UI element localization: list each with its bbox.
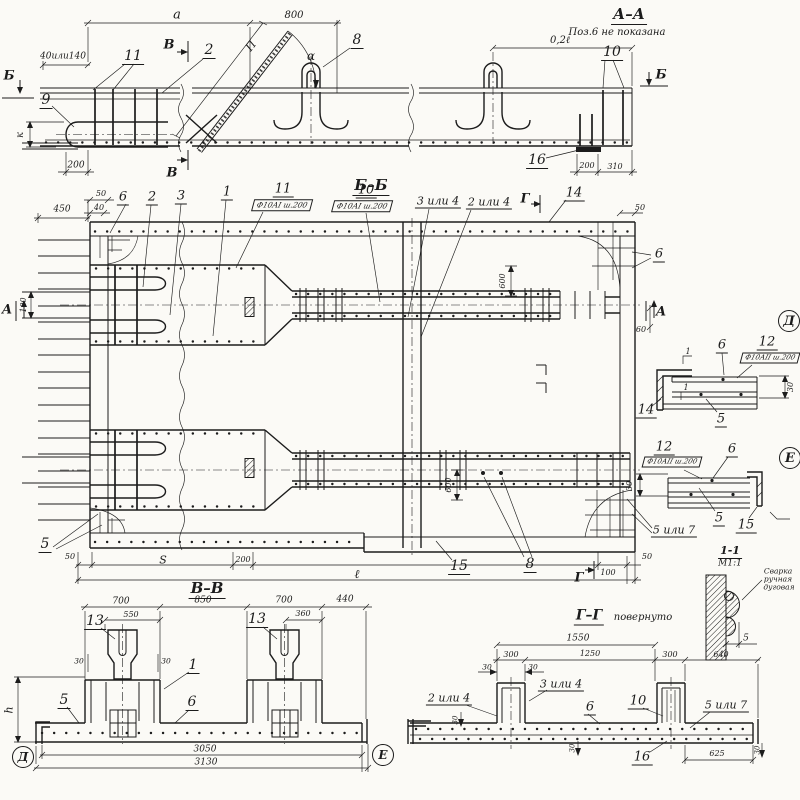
dim-0-2l: 0,2ℓ [550,36,570,46]
dim-30-g5: 30 [755,746,762,755]
detail-e-ref: Е [372,744,394,766]
pos-2-aa: 2 [203,43,216,59]
dim-700-l: 700 [112,598,129,607]
pos-16-aa: 16 [526,153,548,169]
dim-300-r: 300 [662,651,677,659]
pos-16-gg: 16 [632,751,653,766]
section-gg-note: повернуто [614,613,673,623]
dim-600-top: 600 [499,273,507,288]
dim-30-v1: 30 [74,657,84,665]
pos-14-d: 14 [636,404,657,419]
dim-200-bot: 200 [235,556,250,564]
dim-100-bot: 100 [600,569,615,577]
dim-450: 450 [53,206,70,215]
pos-5or7-gg: 5 или 7 [703,700,749,713]
pos-5-vv: 5 [58,693,71,709]
pos-12-d: 12 [757,336,778,351]
dim-30-v2: 30 [161,657,171,665]
marker-a-left: А [2,304,13,317]
marker-v-bottom: В [167,167,178,180]
pos-3or4-bb: 3 или 4 [415,196,461,209]
pos-5or7-plan: 5 или 7 [651,525,697,538]
dim-30-g2: 30 [528,663,538,671]
pos-8-bb: 8 [524,557,537,573]
pos-2or4-gg: 2 или 4 [426,693,472,706]
dim-30-g1: 30 [482,663,492,671]
section-aa-note: Поз.6 не показана [569,28,666,38]
dim-40-tl: 40 [94,204,104,212]
flag-11: Ф10АI ш.200 [251,199,313,211]
dim-200-aa: 200 [67,162,84,171]
dim-60: 60 [636,326,646,334]
dim-200-right: 200 [579,162,594,170]
marker-b-right: Б [655,69,666,82]
dim-550: 550 [123,611,138,619]
pos-14-bb: 14 [564,187,585,202]
dim-100-left: 100 [20,297,28,312]
pos-6-tl: 6 [117,191,129,206]
dim-50-tl: 50 [96,190,106,198]
dim-5-weld: 5 [743,635,749,644]
dim-30-g3: 30 [453,716,460,725]
dim-850: 850 [194,597,211,606]
dim-alpha: α [307,50,315,62]
dim-700-r: 700 [275,597,292,606]
detail-d-mark: Д [778,310,800,332]
detail-e-mark: Е [779,447,800,469]
pos-6-e: 6 [726,443,738,458]
dim-50-tr: 50 [635,204,645,212]
weld-mark-1a: 1 [685,348,690,356]
dim-30-g4: 30 [570,744,577,753]
pos-10-aa: 10 [601,45,623,61]
pos-11-bb: 11 [273,183,294,198]
pos-5-e: 5 [713,512,725,527]
flag-12-e: Ф10АII ш.200 [642,457,703,468]
dim-360: 360 [295,610,310,618]
flag-12-d: Ф10АII ш.200 [740,353,800,364]
dim-800: 800 [284,11,303,21]
pos-6-gg: 6 [584,701,596,716]
dim-625: 625 [709,750,724,758]
pos-6-vv: 6 [186,695,199,711]
dim-30-d: 30 [787,382,795,392]
pos-13-r: 13 [246,612,268,628]
pos-1-bb: 1 [221,186,233,201]
pos-3-bb: 3 [175,190,187,205]
dim-440: 440 [336,596,353,605]
dim-k: к [16,132,26,138]
pos-3or4-gg: 3 или 4 [538,679,584,692]
weld-title: 1-1 [718,545,742,559]
dim-h: h [4,706,15,713]
pos-8: 8 [351,33,364,49]
marker-g-bot: Г [575,572,584,585]
dim-50-br: 50 [642,553,652,561]
dim-600-bot: 600 [445,477,453,492]
marker-v-top: В [164,39,175,52]
pos-15-e: 15 [736,519,757,534]
pos-12-e: 12 [654,441,675,456]
drawing-sheet: А–АПоз.6 не показанаа8000,2ℓ40или140Б911… [0,0,800,800]
weld-scale: М1:1 [718,560,742,569]
weld-note-3: дуговая [763,583,794,591]
detail-d-ref: Д [12,746,34,768]
dim-3130: 3130 [195,759,218,768]
marker-g-top: Г [521,193,530,206]
section-gg-title: Г–Г [574,609,604,626]
dim-3050: 3050 [194,746,217,755]
dim-40-140: 40или140 [40,53,86,62]
dim-640: 640 [713,651,728,659]
section-aa-title: А–А [611,7,647,25]
dim-s: S [159,555,167,566]
pos-5-d: 5 [715,413,727,428]
pos-2or4-bb: 2 или 4 [466,197,512,210]
annotation-layer: А–АПоз.6 не показанаа8000,2ℓ40или140Б911… [0,0,800,800]
weld-mark-1b: 1 [683,384,688,392]
pos-10-bb: 10 [356,184,377,199]
pos-9: 9 [40,93,53,109]
marker-a-right: А [656,306,667,319]
pos-10-gg: 10 [628,695,649,710]
dim-a: а [173,9,181,22]
marker-b-left: Б [3,70,14,83]
pos-6-d: 6 [716,339,728,354]
pos-1-vv: 1 [187,658,200,674]
pos-5-bl: 5 [39,537,52,553]
pos-2-bb: 2 [146,191,158,206]
dim-50-bl: 50 [65,553,75,561]
dim-310: 310 [607,163,622,171]
dim-300-l: 300 [503,651,518,659]
dim-30-e: 30 [626,481,634,491]
pos-13-l: 13 [84,614,106,630]
dim-p: П [244,39,259,53]
pos-11-aa: 11 [122,49,144,65]
dim-1550: 1550 [567,635,590,644]
dim-l: ℓ [355,568,360,580]
pos-15-bb: 15 [448,559,470,575]
dim-1250: 1250 [580,650,600,658]
flag-10: Ф10АI ш.200 [331,200,393,212]
pos-6-tr: 6 [653,248,665,263]
